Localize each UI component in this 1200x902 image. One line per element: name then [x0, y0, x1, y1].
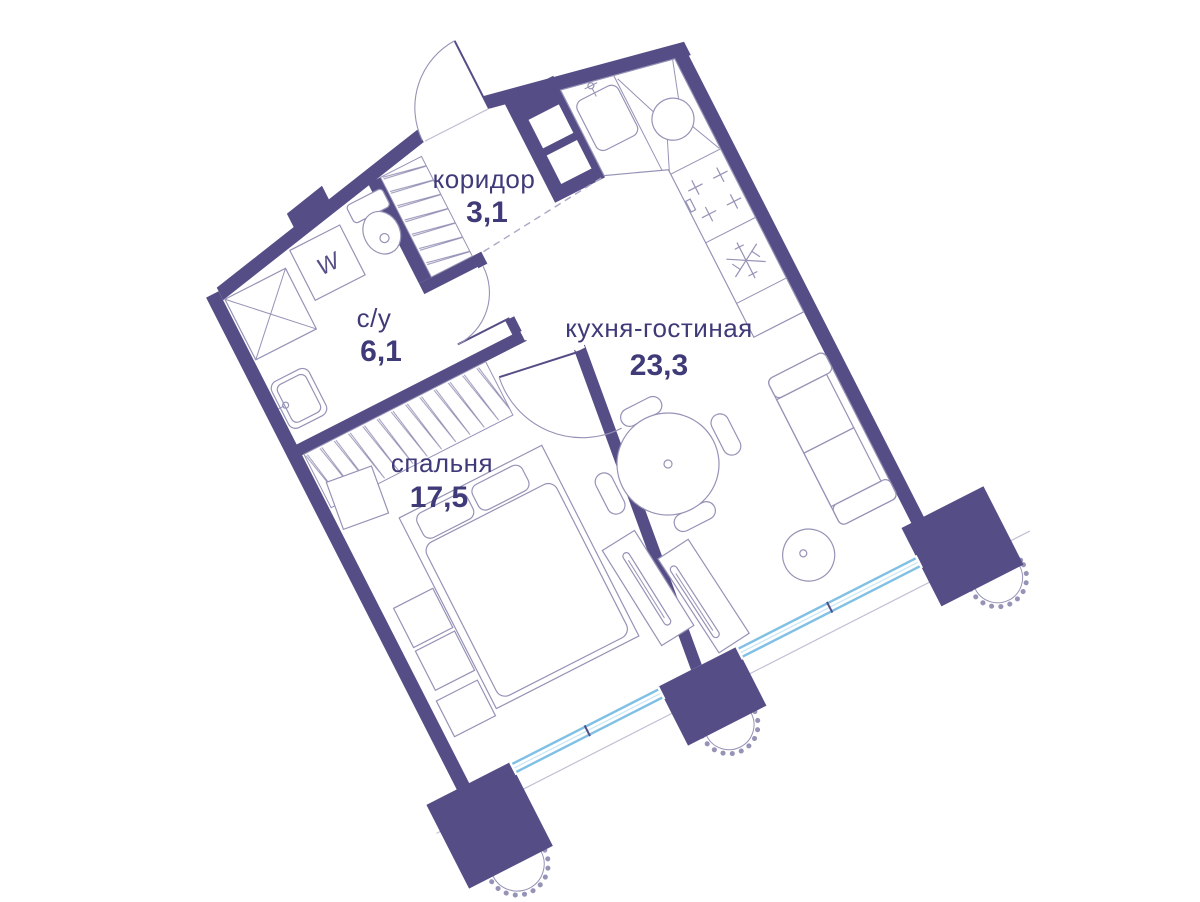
entrance-door-arc	[389, 41, 489, 142]
window-band	[510, 687, 664, 775]
washer-label: W	[312, 246, 345, 280]
floor-plan-canvas: W	[0, 0, 1200, 902]
rotated-plan: W	[120, 0, 1073, 902]
kitchen-living-label: кухня-гостиная	[565, 313, 752, 343]
floor-plan-svg: W	[0, 0, 1200, 902]
kitchen-living-area: 23,3	[630, 349, 688, 382]
bathroom-label: с/у	[357, 303, 392, 333]
bedroom-label: спальня	[391, 448, 493, 478]
pouf-icon	[774, 520, 844, 590]
bathroom-area: 6,1	[360, 335, 402, 368]
bedroom-area: 17,5	[410, 481, 468, 514]
corridor-area: 3,1	[466, 196, 508, 229]
corridor-label: коридор	[433, 164, 536, 194]
